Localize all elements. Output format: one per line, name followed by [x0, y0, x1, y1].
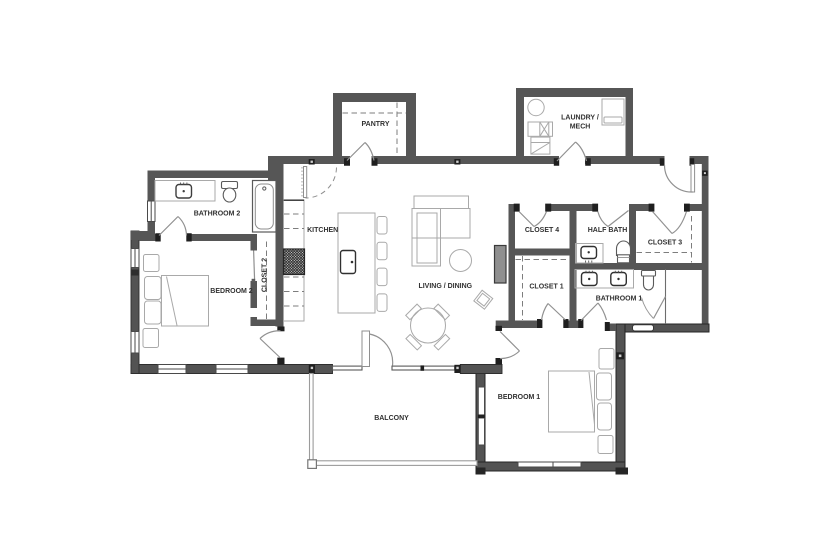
svg-text:CLOSET 4: CLOSET 4: [525, 227, 559, 234]
svg-text:HALF BATH: HALF BATH: [588, 227, 628, 234]
svg-text:MECH: MECH: [570, 124, 591, 131]
svg-text:CLOSET 1: CLOSET 1: [529, 283, 563, 290]
svg-text:LAUNDRY /: LAUNDRY /: [561, 115, 599, 122]
svg-text:CLOSET 3: CLOSET 3: [648, 239, 682, 246]
svg-text:BEDROOM 1: BEDROOM 1: [498, 394, 541, 401]
svg-text:BALCONY: BALCONY: [374, 415, 409, 422]
svg-text:CLOSET 2: CLOSET 2: [261, 258, 268, 292]
svg-text:PANTRY: PANTRY: [362, 121, 390, 128]
svg-text:BATHROOM 1: BATHROOM 1: [596, 295, 643, 302]
svg-text:KITCHEN: KITCHEN: [307, 227, 338, 234]
svg-text:BEDROOM 2: BEDROOM 2: [210, 288, 253, 295]
svg-text:LIVING / DINING: LIVING / DINING: [418, 283, 472, 290]
svg-text:BATHROOM 2: BATHROOM 2: [194, 211, 241, 218]
